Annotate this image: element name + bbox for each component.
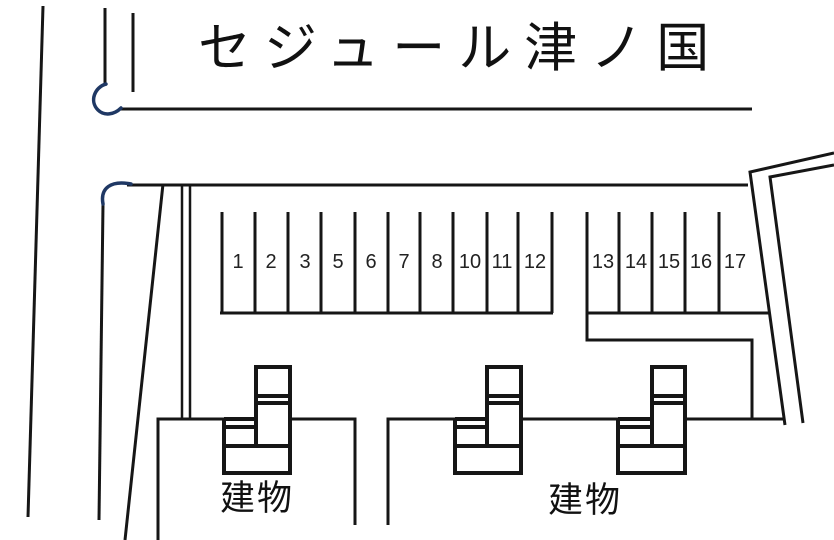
entrance-structure-3	[618, 367, 685, 473]
entrance-structure-2	[455, 367, 521, 473]
parking-space-number-11: 11	[485, 249, 519, 275]
parking-space-number-7: 7	[387, 249, 421, 275]
parking-space-number-17: 17	[718, 249, 752, 275]
building-label-left: 建物	[217, 480, 297, 518]
parking-space-number-3: 3	[288, 249, 322, 275]
parking-space-number-16: 16	[684, 249, 718, 275]
double-line-fence	[182, 186, 190, 418]
building-label-right: 建物	[545, 482, 625, 520]
parking-space-number-10: 10	[453, 249, 487, 275]
parking-space-number-6: 6	[354, 249, 388, 275]
site-plan-canvas: セジュール津ノ国 1 2 3 5 6 7 8 10 11 12 13 14 15…	[0, 0, 834, 540]
parking-space-number-14: 14	[619, 249, 653, 275]
parking-space-number-2: 2	[254, 249, 288, 275]
parking-block-right-lines	[587, 212, 769, 419]
hook-curve-upper	[94, 84, 121, 114]
parking-space-number-5: 5	[321, 249, 355, 275]
middle-slant-line	[99, 204, 103, 520]
corner-curve-hooks	[94, 84, 131, 204]
page-title: セジュール津ノ国	[198, 20, 722, 78]
parking-space-number-12: 12	[518, 249, 552, 275]
parking-space-number-8: 8	[420, 249, 454, 275]
parking-space-number-15: 15	[652, 249, 686, 275]
right-road-outer-line	[750, 153, 834, 425]
parking-space-number-13: 13	[586, 249, 620, 275]
hook-curve-lower	[103, 183, 131, 204]
left-boundary-line	[28, 6, 43, 517]
entrance-structure-1	[224, 367, 290, 473]
parking-space-number-1: 1	[221, 249, 255, 275]
